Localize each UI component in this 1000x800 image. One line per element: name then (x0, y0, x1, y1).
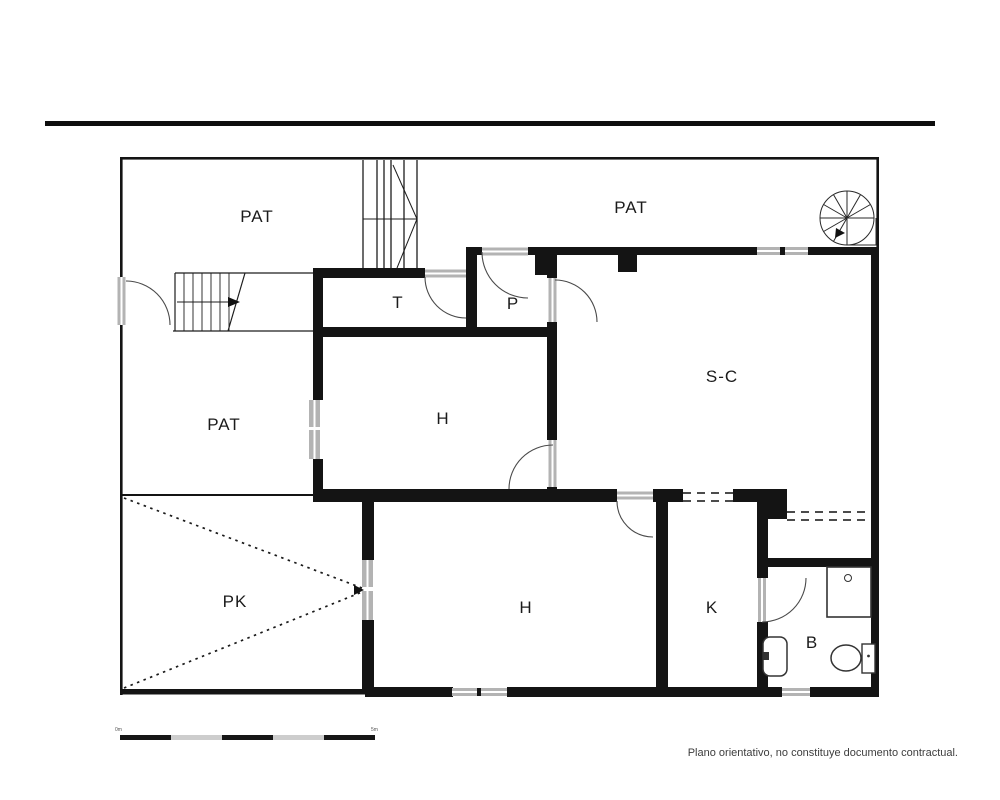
doors (118, 248, 807, 623)
window-bathroom-bottom (782, 688, 810, 696)
door-kitchen-to-bathroom (758, 578, 806, 622)
straight-stairs-left (173, 273, 313, 331)
sink-faucet (763, 652, 769, 660)
room-label-porch: P (507, 294, 519, 313)
floor-plan: PAT PAT PAT T P S-C H H PK K B (0, 0, 1000, 800)
room-label-kitchen: K (706, 598, 718, 617)
straight-stairs-top (363, 160, 417, 268)
scale-segment (222, 735, 273, 740)
scale-bar (120, 735, 375, 740)
room-label-patio-top-right: PAT (614, 198, 648, 217)
l-block-lower (757, 502, 787, 519)
room-label-patio-top-left: PAT (240, 207, 274, 226)
window-living-top (757, 247, 808, 255)
room-label-living-dining: S-C (706, 367, 738, 386)
disclaimer-text: Plano orientativo, no constituye documen… (500, 747, 958, 759)
room-label-patio-left: PAT (207, 415, 241, 434)
room-label-parking: PK (223, 592, 248, 611)
door-storage (425, 270, 466, 319)
floor-plan-page: PAT PAT PAT T P S-C H H PK K B 0m 5m Pla… (0, 0, 1000, 800)
toilet-bowl (831, 645, 861, 671)
bathroom-fixtures (763, 567, 875, 676)
scale-segment (273, 735, 324, 740)
room-label-hall-middle: H (436, 409, 449, 428)
window-hall-bottom (452, 688, 507, 696)
door-living-to-hall-bottom (617, 492, 653, 538)
scale-segment (171, 735, 222, 740)
door-porch-entry (482, 248, 528, 299)
door-patio-left (118, 277, 171, 325)
scale-segment (120, 735, 171, 740)
room-label-bathroom: B (806, 633, 818, 652)
l-block-upper (733, 489, 787, 502)
stair-direction-arrow (228, 297, 240, 307)
windows (309, 247, 810, 696)
room-label-hall-bottom: H (519, 598, 532, 617)
door-hall-to-living (509, 440, 557, 489)
shower-drain (845, 575, 852, 582)
chimney-block (618, 255, 637, 272)
toilet-tank (862, 644, 875, 673)
scale-segment (324, 735, 375, 740)
spiral-staircase (820, 191, 876, 245)
toilet-button (867, 655, 870, 658)
scale-tick-right: 5m (371, 727, 378, 733)
room-label-storage: T (392, 293, 403, 312)
door-porch-to-living (549, 278, 598, 322)
window-hall-middle-left (309, 400, 320, 459)
scale-tick-left: 0m (115, 727, 122, 733)
